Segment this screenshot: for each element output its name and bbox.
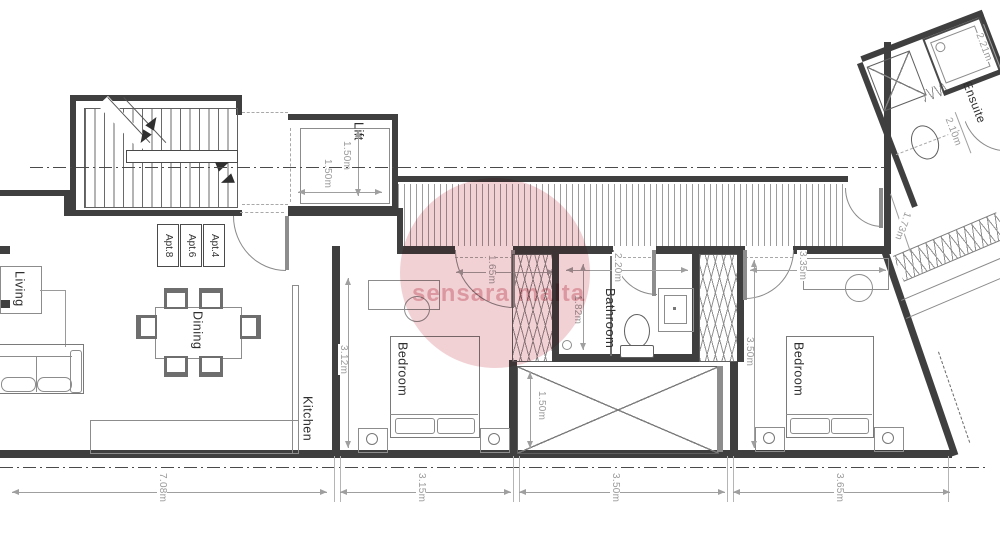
bedroom1-label: Bedroom — [396, 342, 409, 396]
dim-label: 7.08m — [157, 472, 167, 503]
dim-label: 3.35m — [797, 250, 807, 281]
dim-arrow — [681, 267, 688, 273]
apt-tag: Apt.6 — [180, 224, 202, 267]
wall — [288, 206, 398, 216]
apt-tag-label: Apt.6 — [186, 234, 196, 257]
dim-line — [566, 270, 688, 271]
dim-arrow — [566, 267, 573, 273]
dim-label: 3.50m — [610, 472, 620, 503]
apt-tag: Apt.8 — [157, 224, 179, 267]
kitchen-counter — [90, 420, 299, 454]
entrance-opening-dashed — [240, 212, 284, 213]
sofa-armrest — [70, 350, 82, 393]
dim-arrow — [12, 489, 19, 495]
dim-arrow — [718, 489, 725, 495]
dim-arrow — [504, 489, 511, 495]
lamp — [488, 433, 500, 445]
stool — [845, 274, 873, 302]
wall — [396, 176, 848, 182]
chair — [199, 288, 223, 309]
pillow — [790, 418, 830, 434]
bedroom2-label: Bedroom — [792, 342, 805, 396]
dim-arrow — [527, 372, 533, 379]
sofa-cushion — [1, 377, 36, 392]
wall — [64, 190, 70, 216]
wardrobe — [699, 254, 740, 362]
bedroom1-door-arc — [455, 250, 514, 308]
dim-arrow — [879, 267, 886, 273]
connector-line — [65, 290, 66, 347]
bathroom-label: Bathroom — [604, 288, 617, 348]
dim-arrow — [375, 189, 382, 195]
floor-plan: Lift 1.50m 1.50m Bedroom — [0, 0, 1000, 542]
dim-label: 2.20m — [612, 252, 622, 283]
wall — [656, 246, 745, 254]
lamp — [366, 433, 378, 445]
chair — [136, 315, 157, 339]
kitchen-counter-return — [292, 285, 299, 454]
wall — [397, 246, 455, 254]
pillow — [437, 418, 475, 434]
wall — [70, 95, 242, 101]
dim-line — [530, 372, 531, 448]
extension-line — [727, 456, 728, 502]
wall-stub — [0, 246, 10, 254]
dim-arrow — [751, 260, 757, 267]
wardrobe — [512, 254, 554, 362]
bed-line — [786, 414, 872, 415]
shower-drain — [562, 340, 572, 350]
lift-door-dashed — [290, 128, 291, 202]
dim-arrow — [345, 441, 351, 448]
chair — [164, 288, 188, 309]
connector-line — [40, 290, 66, 291]
dim-arrow — [298, 189, 305, 195]
extension-line — [340, 456, 341, 502]
entrance-door-arc — [233, 216, 286, 271]
dining-label: Dining — [191, 311, 204, 349]
wall — [513, 246, 613, 254]
void-shaft — [517, 366, 719, 454]
corridor-door-arc — [845, 188, 882, 227]
sofa-cushion — [37, 377, 72, 392]
chair — [164, 356, 188, 377]
dim-arrow — [751, 441, 757, 448]
corridor-floor-hatch — [398, 184, 846, 246]
dim-line — [583, 264, 584, 350]
dim-arrow — [527, 441, 533, 448]
apt-tag-label: Apt.4 — [209, 234, 219, 257]
toilet-tank — [620, 345, 654, 358]
dim-arrow — [750, 267, 757, 273]
wall — [288, 114, 398, 120]
dim-arrow — [733, 489, 740, 495]
dim-arrow — [355, 130, 361, 137]
chair — [240, 315, 261, 339]
lobby-dashed-line — [242, 112, 288, 113]
extension-line — [948, 456, 949, 502]
ensuite-cluster: Ensuite 2.21m 2.10m — [838, 4, 1000, 261]
dim-arrow — [519, 489, 526, 495]
dim-label: 1.50m — [322, 158, 332, 189]
bedroom2-door-arc — [745, 250, 794, 299]
dim-label: 1.65m — [486, 254, 496, 285]
dim-line — [358, 130, 359, 196]
extension-line — [334, 456, 335, 502]
dim-line — [298, 192, 382, 193]
dim-line — [12, 492, 327, 493]
sink-tap — [673, 307, 676, 310]
dim-label: 1.50m — [536, 390, 546, 421]
dim-arrow — [345, 278, 351, 285]
wall — [509, 360, 517, 452]
dim-label: 3.50m — [744, 336, 754, 367]
dim-label: 3.15m — [416, 472, 426, 503]
dim-arrow — [320, 489, 327, 495]
dim-arrow — [943, 489, 950, 495]
chair — [199, 356, 223, 377]
wall — [717, 366, 723, 452]
dim-label: 3.65m — [834, 472, 844, 503]
wall — [730, 362, 738, 452]
dim-arrow — [456, 269, 463, 275]
dim-label: 3.12m — [338, 344, 348, 375]
ensuite-label: Ensuite — [961, 80, 988, 125]
dim-line — [750, 270, 886, 271]
wall — [552, 252, 559, 362]
dim-label: 2.10m — [942, 116, 963, 149]
dim-line — [519, 492, 725, 493]
centerline — [0, 467, 985, 468]
dim-label: 1.82m — [572, 294, 582, 325]
toilet-bowl — [624, 314, 650, 348]
pillow — [395, 418, 435, 434]
dim-arrow — [340, 489, 347, 495]
pillow — [831, 418, 869, 434]
lobby-dashed-line — [242, 204, 288, 205]
kitchen-label: Kitchen — [301, 396, 314, 441]
apt-tag: Apt.4 — [203, 224, 225, 267]
extension-line — [519, 456, 520, 502]
dim-arrow — [580, 343, 586, 350]
living-label: Living — [13, 271, 26, 307]
wall — [0, 190, 66, 196]
stool — [404, 296, 430, 322]
extension-line — [733, 456, 734, 502]
wall — [70, 210, 242, 216]
bed-line — [390, 414, 478, 415]
wall — [70, 95, 76, 216]
external-line — [906, 277, 1000, 319]
lamp — [763, 432, 775, 444]
extension-line — [513, 456, 514, 502]
centerline — [30, 167, 884, 168]
apt-tag-label: Apt.8 — [163, 234, 173, 257]
lamp — [882, 432, 894, 444]
